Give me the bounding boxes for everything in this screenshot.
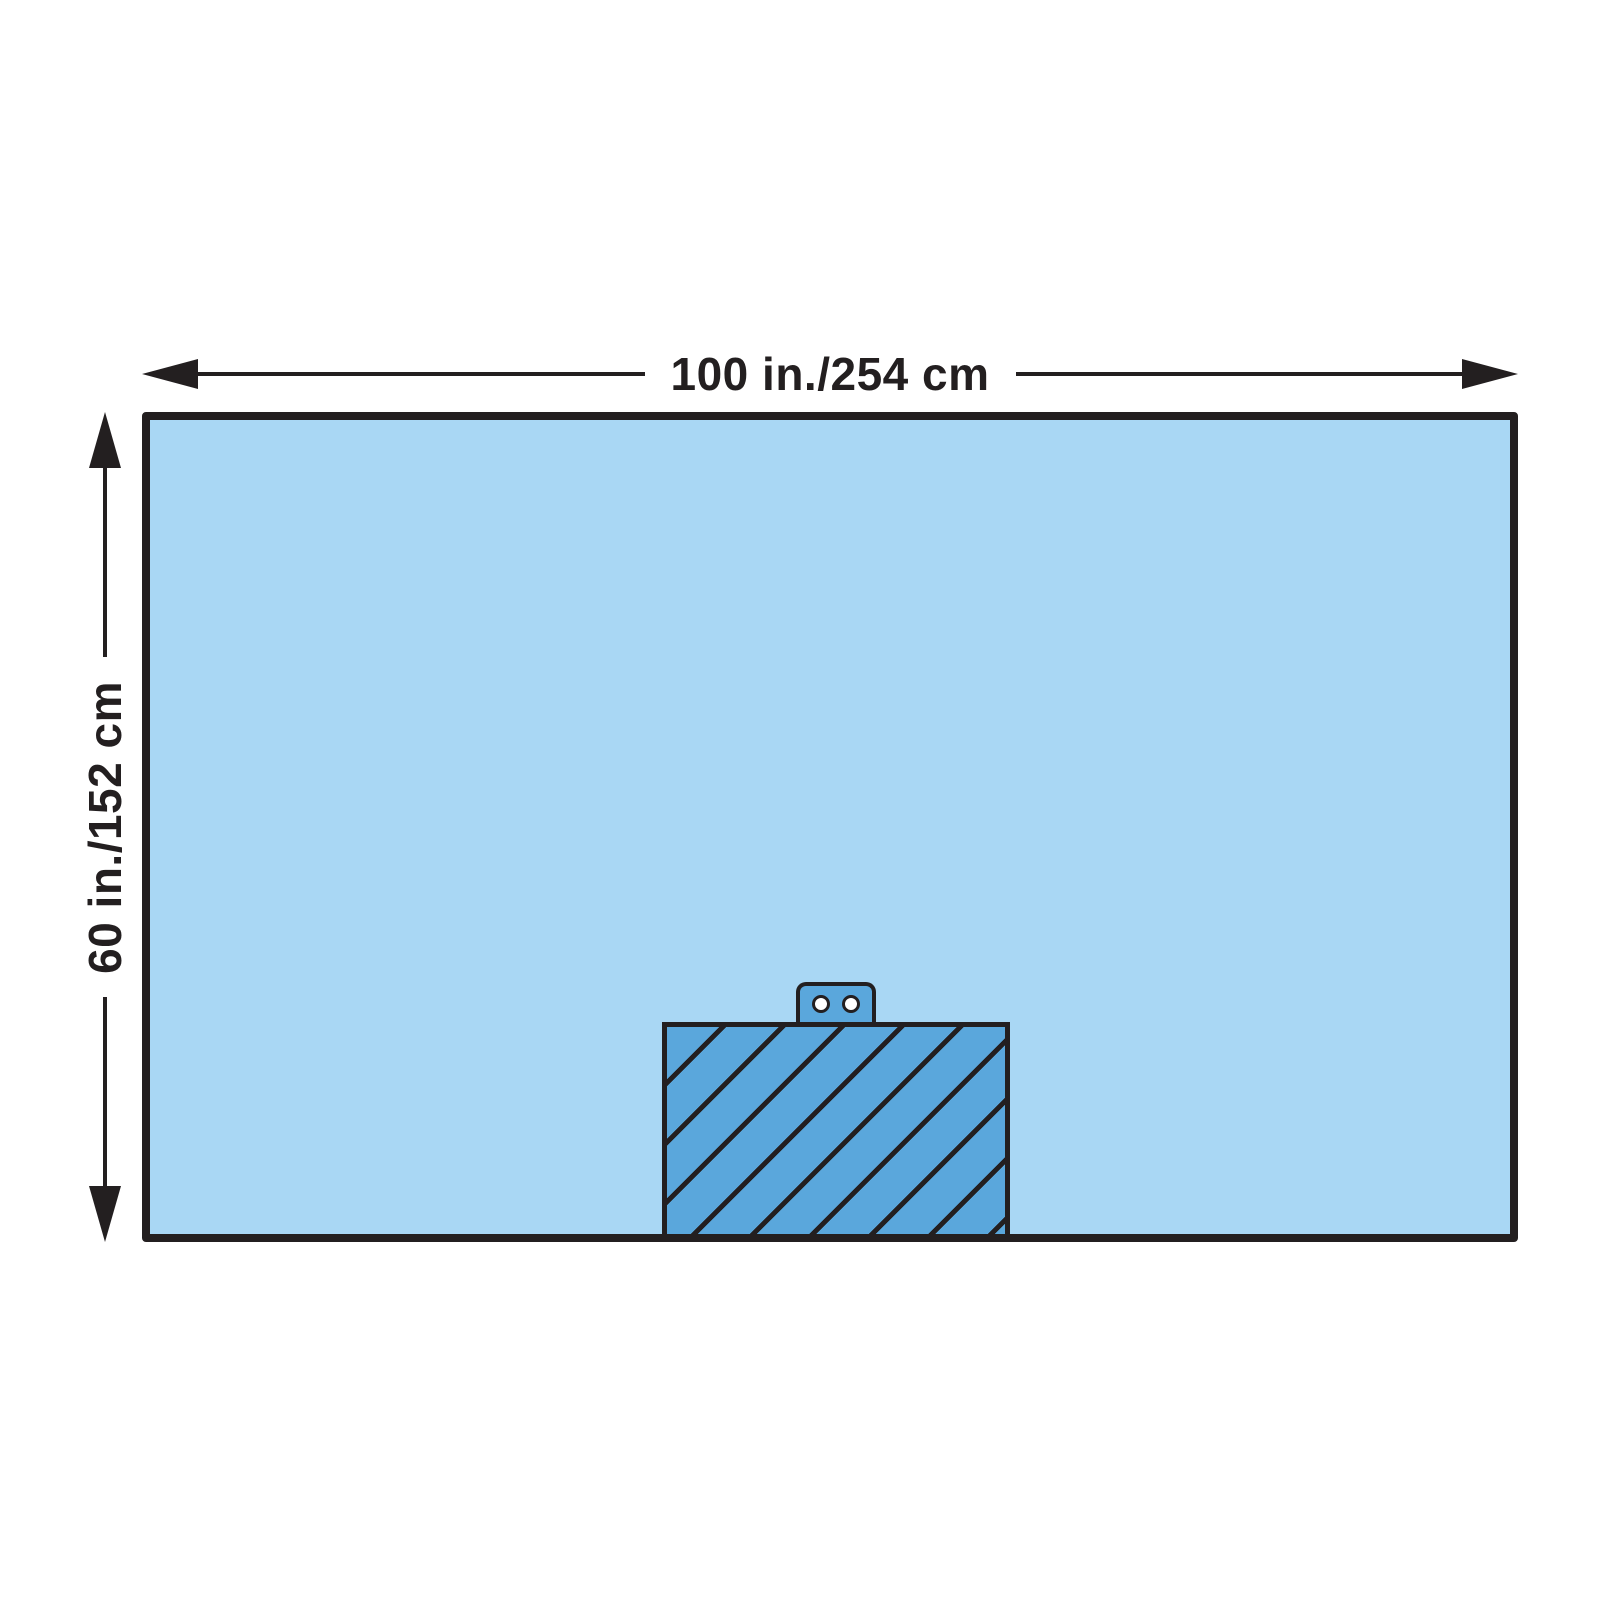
width-dimension-line-left — [198, 372, 645, 376]
reinforcement-patch — [662, 1022, 1010, 1234]
arrowhead-down-icon — [89, 1186, 121, 1242]
height-dimension: 60 in./152 cm — [73, 412, 137, 1242]
arrowhead-up-icon — [89, 412, 121, 468]
width-dimension: 100 in./254 cm — [142, 346, 1518, 402]
drape-sheet — [142, 412, 1518, 1242]
height-dimension-line-bottom — [103, 997, 107, 1186]
width-dimension-label: 100 in./254 cm — [645, 346, 1016, 402]
width-dimension-line-right — [1016, 372, 1463, 376]
arrowhead-right-icon — [1462, 359, 1518, 389]
drape-dimension-diagram: 100 in./254 cm 60 in./152 cm — [0, 0, 1600, 1600]
tab-hole-right — [842, 995, 860, 1013]
height-dimension-line-top — [103, 468, 107, 657]
tube-holder-tab — [796, 982, 876, 1022]
height-dimension-label: 60 in./152 cm — [77, 657, 133, 998]
arrowhead-left-icon — [142, 359, 198, 389]
tab-hole-left — [812, 995, 830, 1013]
